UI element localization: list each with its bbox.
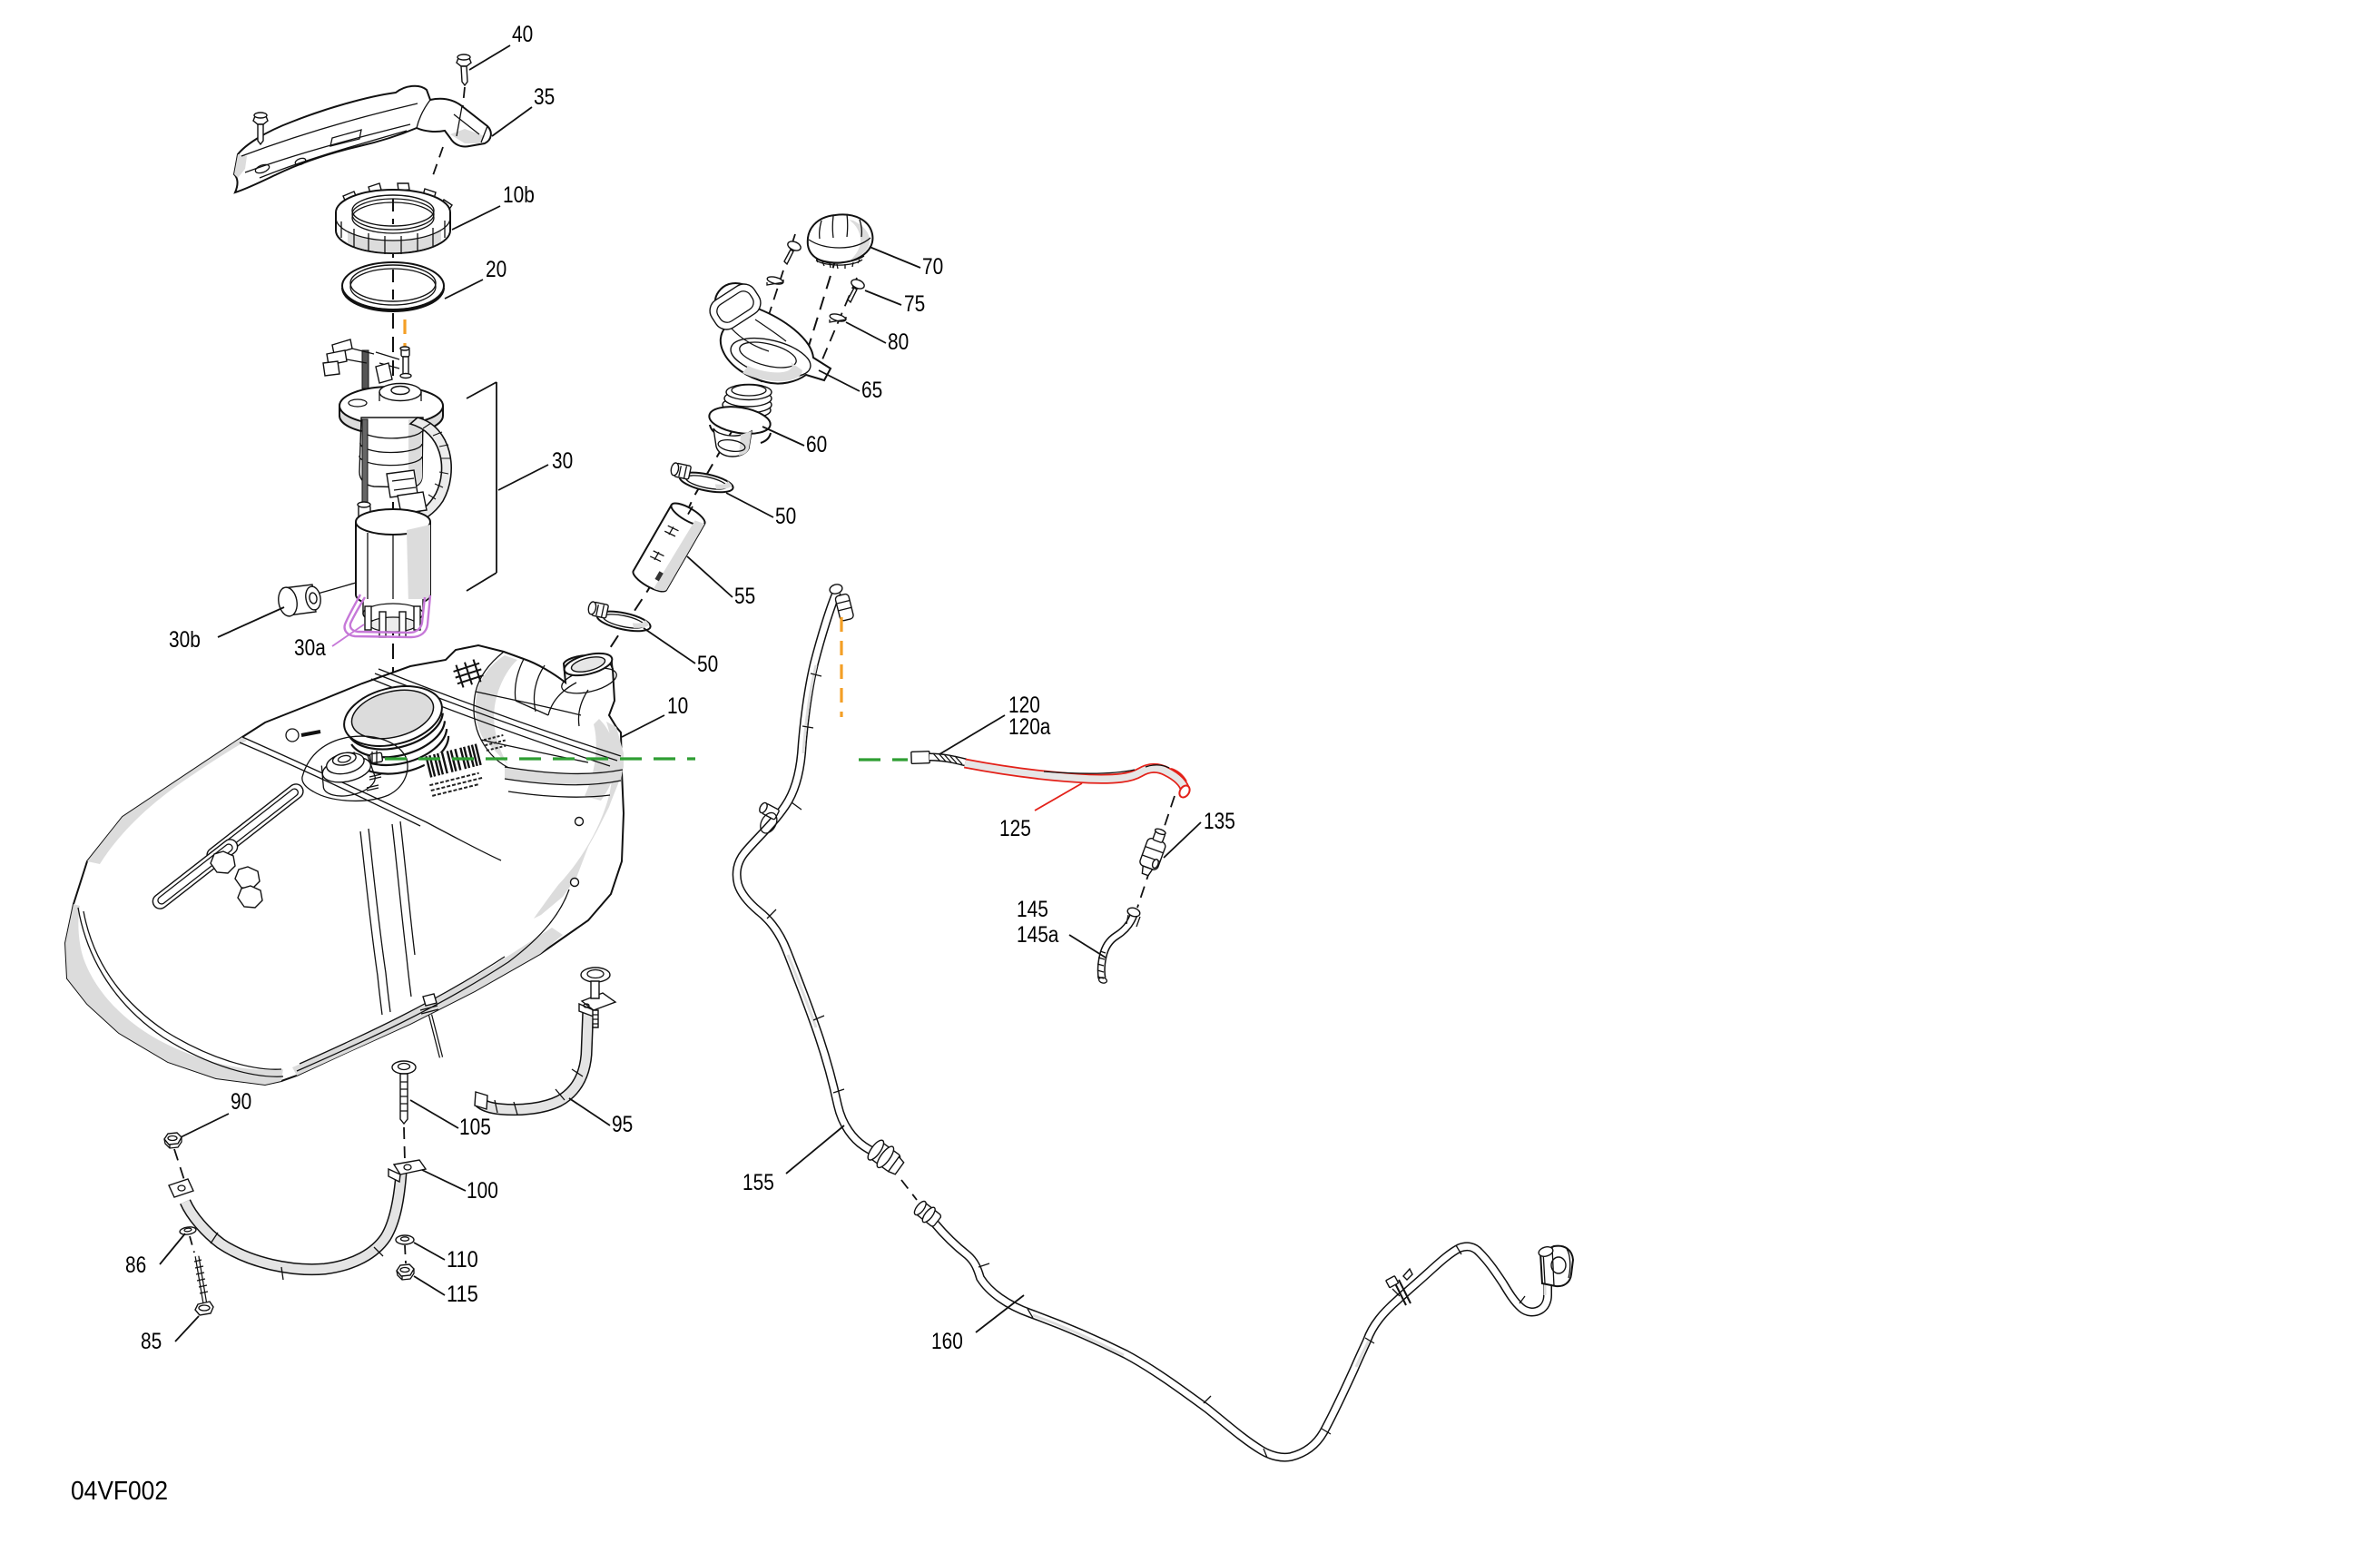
svg-text:110: 110 [447, 1247, 478, 1273]
svg-text:40: 40 [512, 22, 533, 47]
svg-text:95: 95 [612, 1112, 633, 1137]
svg-text:50: 50 [775, 504, 796, 529]
svg-text:70: 70 [922, 254, 943, 280]
svg-text:90: 90 [231, 1089, 251, 1115]
svg-text:30: 30 [552, 448, 573, 474]
svg-text:65: 65 [861, 378, 882, 403]
svg-text:20: 20 [486, 257, 506, 282]
svg-text:75: 75 [904, 291, 925, 317]
svg-text:120a: 120a [1008, 714, 1050, 740]
svg-text:160: 160 [931, 1329, 963, 1354]
svg-text:125: 125 [999, 816, 1031, 841]
svg-text:85: 85 [141, 1329, 162, 1354]
svg-text:04VF002: 04VF002 [71, 1477, 168, 1506]
svg-text:10: 10 [667, 693, 688, 719]
svg-text:86: 86 [125, 1253, 146, 1278]
svg-text:100: 100 [467, 1178, 498, 1204]
svg-text:80: 80 [888, 329, 909, 355]
svg-text:145: 145 [1017, 897, 1048, 922]
svg-text:105: 105 [459, 1115, 491, 1140]
svg-text:60: 60 [806, 432, 827, 457]
svg-text:55: 55 [734, 584, 755, 609]
svg-text:30a: 30a [294, 635, 326, 661]
svg-text:30b: 30b [169, 627, 201, 653]
svg-text:35: 35 [534, 84, 555, 110]
svg-text:50: 50 [697, 652, 718, 677]
svg-text:135: 135 [1204, 809, 1235, 834]
svg-text:145a: 145a [1017, 922, 1058, 948]
svg-text:115: 115 [447, 1282, 478, 1307]
svg-text:155: 155 [743, 1170, 774, 1195]
svg-text:10b: 10b [503, 182, 535, 208]
